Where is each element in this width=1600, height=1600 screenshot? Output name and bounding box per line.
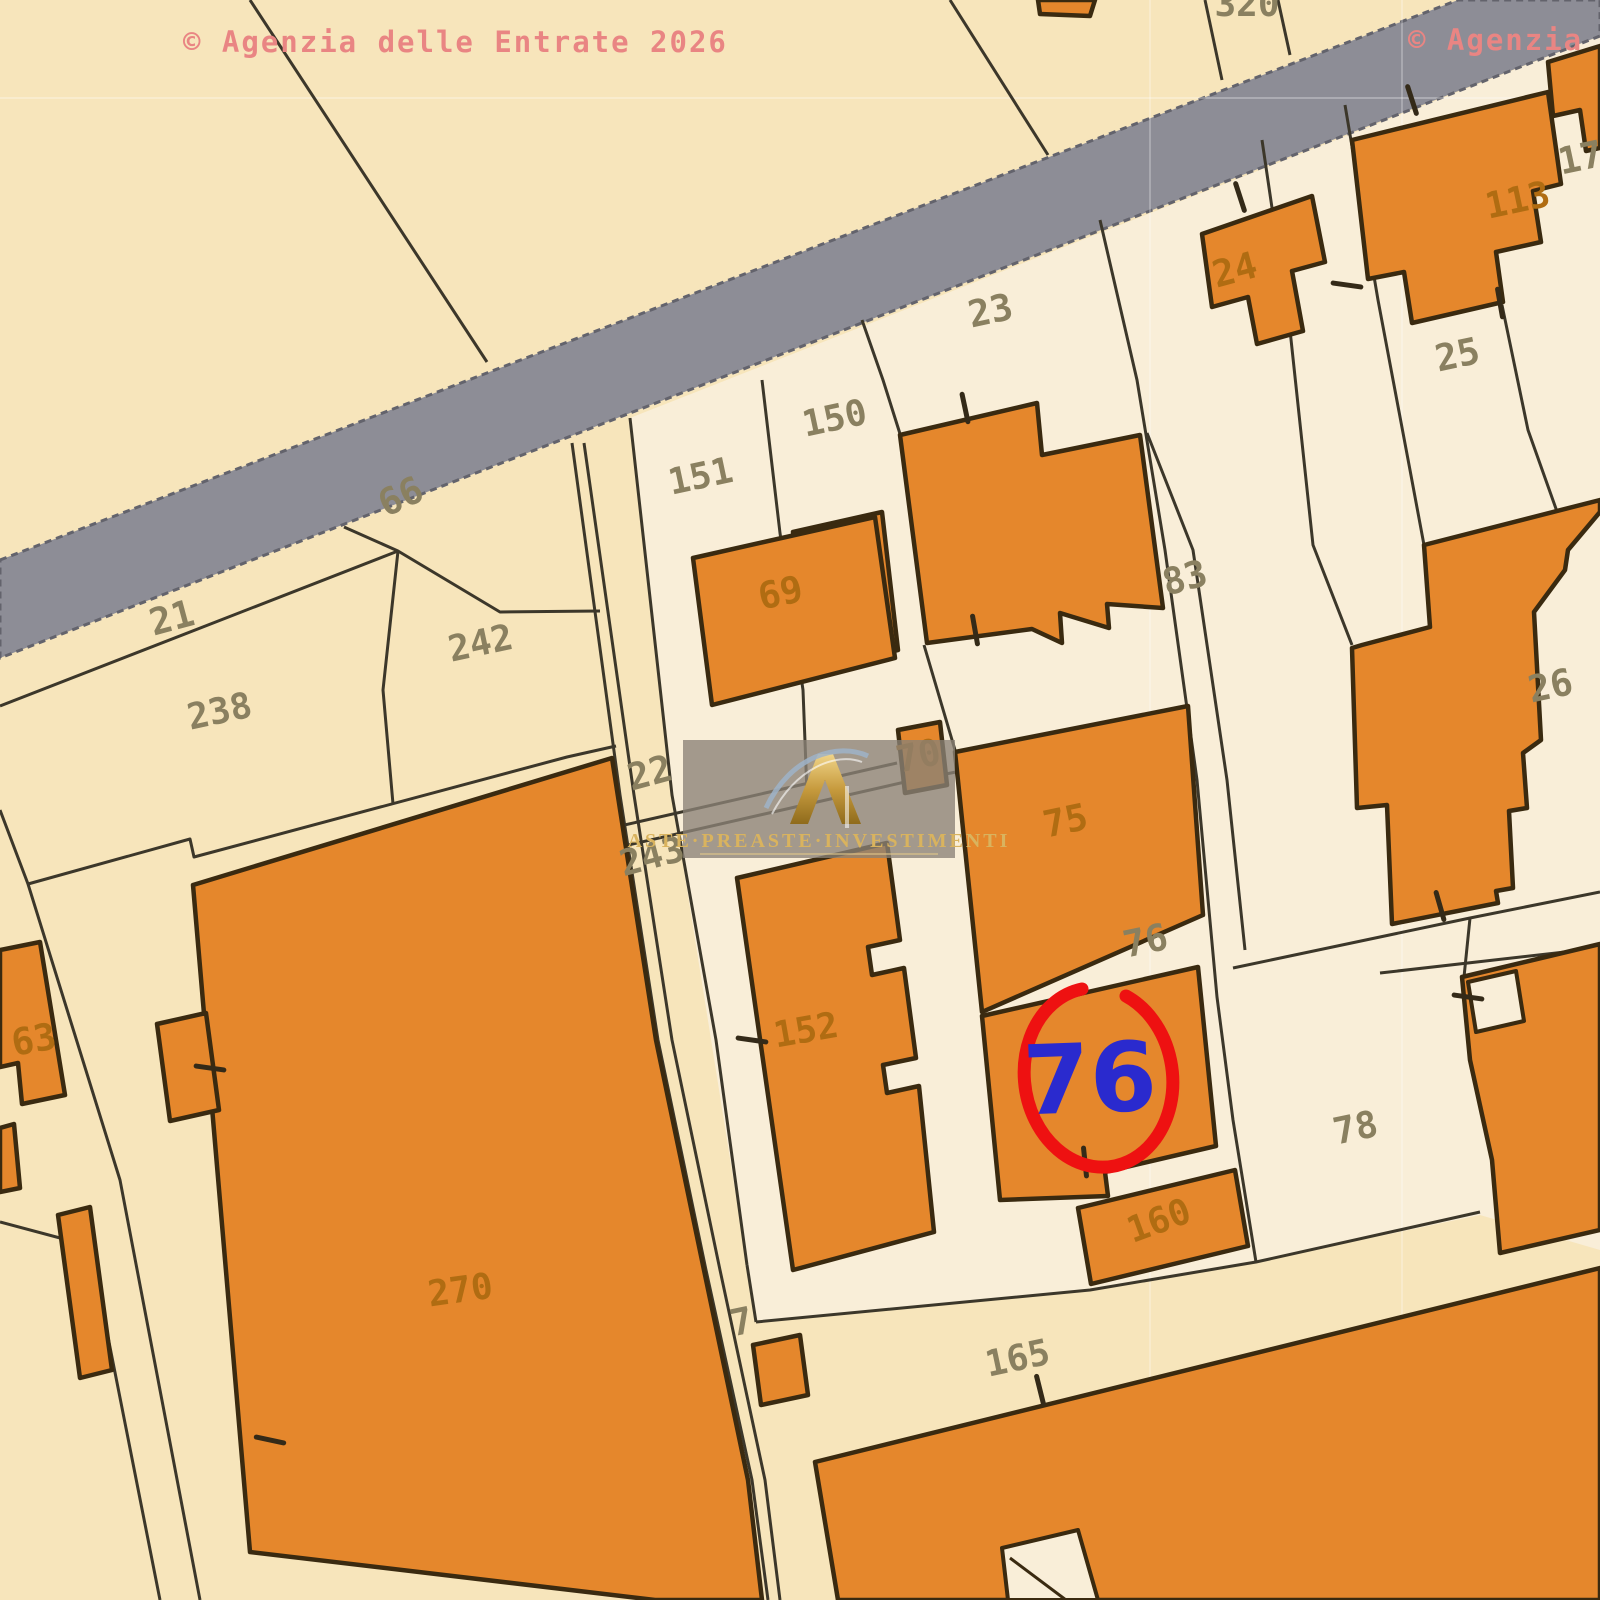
building-150-big [900,403,1163,643]
parcel-label-25: 25 [1431,329,1484,380]
cadastral-map-page: 3202315015166212422382224383762517267816… [0,0,1600,1600]
building-small-7 [753,1335,808,1405]
building-label-75: 75 [1039,795,1092,846]
highlight-label: 76 [1021,1021,1158,1138]
parcel-label-76: 76 [1119,915,1172,966]
copyright-left: © Agenzia delle Entrate 2026 [183,25,728,59]
parcel-label-23: 23 [964,285,1017,336]
watermark: ASTE·PREASTE·INVESTIMENTI [628,740,1011,858]
parcel-label-78: 78 [1329,1102,1382,1153]
building-top-320 [1038,0,1095,16]
building-left-sliver [0,1124,20,1192]
parcel-label-320: 320 [1214,0,1279,25]
building-label-63: 63 [8,1015,59,1065]
watermark-brand-text: ASTE·PREASTE·INVESTIMENTI [628,830,1011,852]
copyright-right: © Agenzia [1408,23,1583,57]
notch-right-78 [1468,971,1524,1032]
parcel-label-26: 26 [1524,660,1577,711]
cadastral-map: 3202315015166212422382224383762517267816… [0,0,1600,1600]
building-label-69: 69 [754,567,807,618]
parcel-label-17: 17 [1554,132,1600,183]
watermark-bar-icon [845,786,849,828]
